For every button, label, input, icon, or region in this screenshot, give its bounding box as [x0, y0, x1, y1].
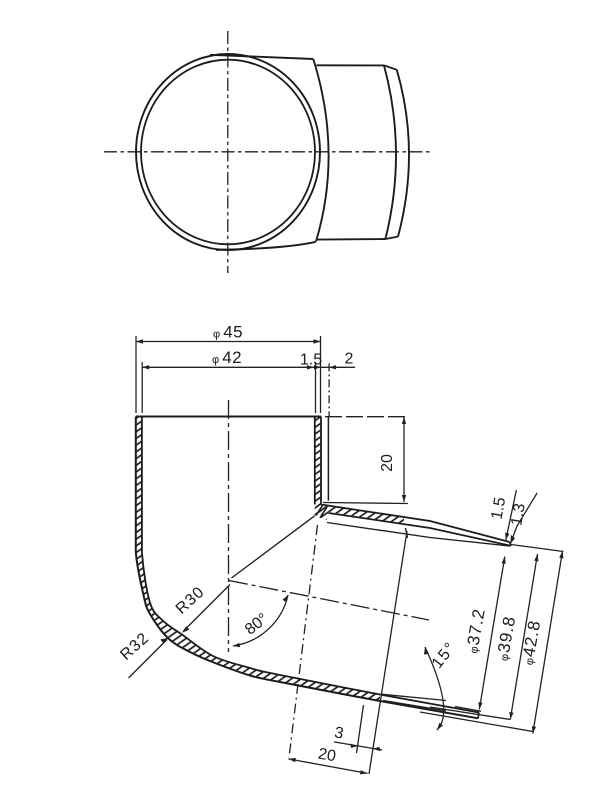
svg-text:20: 20 [379, 454, 396, 472]
svg-text:20: 20 [317, 746, 338, 766]
svg-text:1.5: 1.5 [300, 352, 322, 369]
svg-text:2: 2 [345, 351, 354, 368]
